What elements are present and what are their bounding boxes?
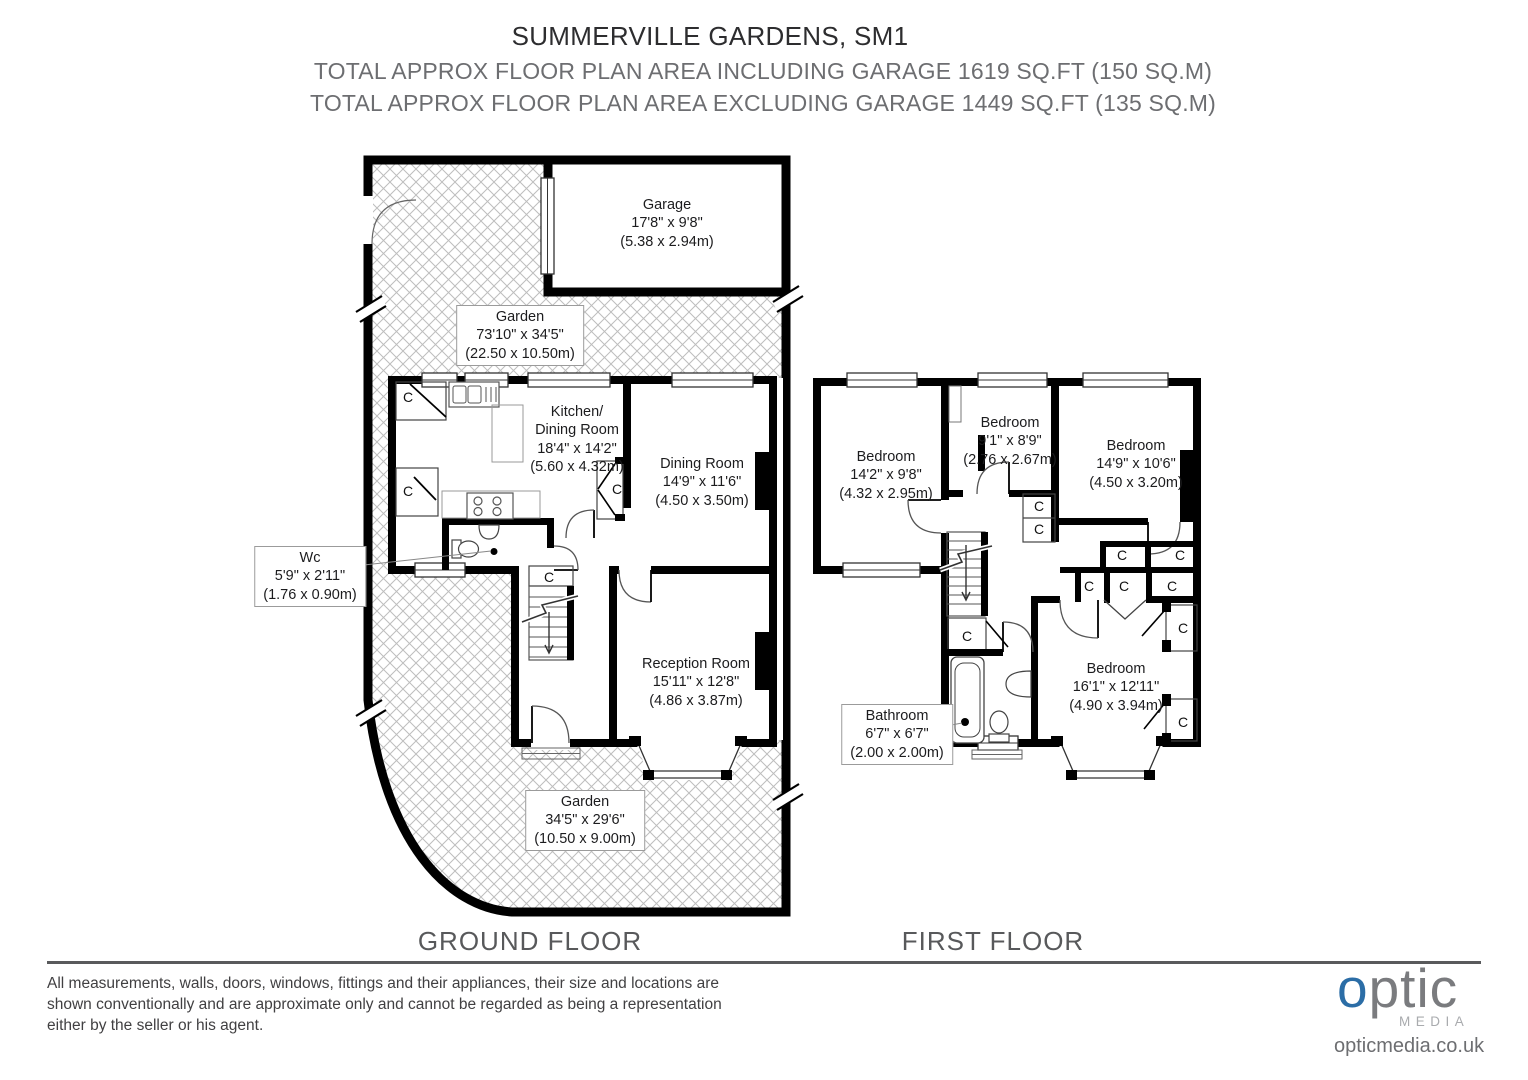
closet-marker: C: [1178, 620, 1188, 636]
optic-media-logo: optic: [1337, 961, 1458, 1016]
first-floor-label: FIRST FLOOR: [902, 926, 1084, 957]
closet-marker: C: [1175, 547, 1185, 563]
footer-divider: [47, 961, 1481, 964]
logo-media-text: MEDIA: [1399, 1014, 1469, 1029]
room-label-kitchen: Kitchen/Dining Room18'4" x 14'2"(5.60 x …: [530, 403, 624, 477]
closet-marker: C: [1034, 498, 1044, 514]
closet-marker: C: [1178, 714, 1188, 730]
room-label-bedroom2: Bedroom9'1" x 8'9"(2.76 x 2.67m): [963, 414, 1057, 469]
closet-marker: C: [1084, 578, 1094, 594]
room-label-dining: Dining Room14'9" x 11'6"(4.50 x 3.50m): [655, 455, 749, 510]
room-label-bedroom4: Bedroom16'1" x 12'11"(4.90 x 3.94m): [1069, 660, 1163, 715]
logo-letters-ptic: ptic: [1369, 957, 1459, 1019]
closet-marker: C: [403, 389, 413, 405]
closet-marker: C: [1119, 578, 1129, 594]
closet-marker: C: [1167, 578, 1177, 594]
floorplan-canvas: [0, 0, 1528, 1080]
closet-marker: C: [403, 483, 413, 499]
closet-marker: C: [612, 481, 622, 497]
closet-marker: C: [1117, 547, 1127, 563]
room-label-wc: Wc5'9" x 2'11"(1.76 x 0.90m): [254, 546, 366, 607]
closet-marker: C: [544, 569, 554, 585]
floorplan-page: SUMMERVILLE GARDENS, SM1 TOTAL APPROX FL…: [0, 0, 1528, 1080]
room-label-bedroom3: Bedroom14'9" x 10'6"(4.50 x 3.20m): [1089, 437, 1183, 492]
room-label-garden-top: Garden73'10" x 34'5"(22.50 x 10.50m): [456, 305, 584, 366]
logo-letter-o: o: [1337, 957, 1369, 1019]
room-label-garden-bottom: Garden34'5" x 29'6"(10.50 x 9.00m): [525, 790, 645, 851]
disclaimer-text: All measurements, walls, doors, windows,…: [47, 974, 722, 1037]
room-label-bathroom: Bathroom6'7" x 6'7"(2.00 x 2.00m): [841, 704, 953, 765]
closet-marker: C: [1034, 521, 1044, 537]
room-label-reception: Reception Room15'11" x 12'8"(4.86 x 3.87…: [642, 655, 750, 710]
logo-website-url: opticmedia.co.uk: [1334, 1035, 1484, 1058]
room-label-garage: Garage17'8" x 9'8"(5.38 x 2.94m): [620, 196, 714, 251]
closet-marker: C: [962, 628, 972, 644]
ground-floor-label: GROUND FLOOR: [418, 926, 642, 957]
room-label-bedroom1: Bedroom14'2" x 9'8"(4.32 x 2.95m): [839, 448, 933, 503]
